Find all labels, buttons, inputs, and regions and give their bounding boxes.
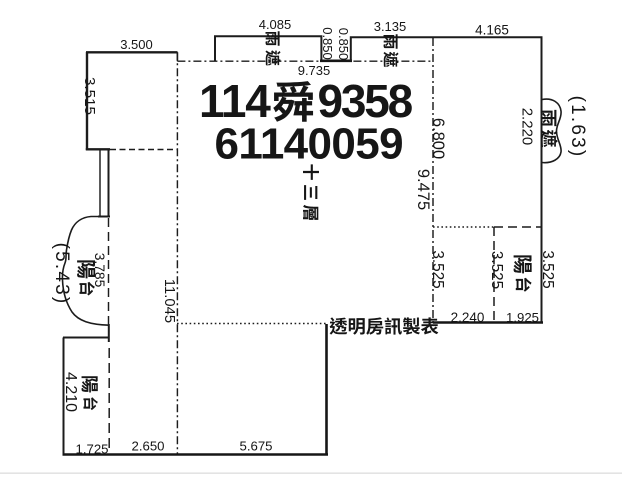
svg-text:3.515: 3.515 bbox=[81, 77, 98, 115]
svg-text:1.925: 1.925 bbox=[506, 310, 539, 325]
svg-text:0.850: 0.850 bbox=[336, 28, 351, 61]
svg-text:1.725: 1.725 bbox=[75, 441, 108, 456]
svg-text:11.045: 11.045 bbox=[161, 279, 177, 323]
svg-text:6.800: 6.800 bbox=[429, 118, 447, 159]
svg-text:9.475: 9.475 bbox=[414, 169, 432, 210]
svg-text:61140059: 61140059 bbox=[215, 120, 404, 169]
svg-text:3.525: 3.525 bbox=[488, 251, 505, 289]
svg-text:4.210: 4.210 bbox=[62, 372, 79, 412]
svg-text:3.525: 3.525 bbox=[429, 250, 446, 288]
svg-text:(1.63): (1.63) bbox=[567, 96, 588, 159]
svg-text:0.850: 0.850 bbox=[320, 27, 335, 60]
svg-text:4.165: 4.165 bbox=[475, 22, 509, 37]
svg-text:(5.43): (5.43) bbox=[51, 243, 72, 306]
svg-text:3.500: 3.500 bbox=[120, 37, 153, 52]
svg-text:3.525: 3.525 bbox=[539, 250, 556, 288]
svg-text:3.135: 3.135 bbox=[374, 19, 407, 34]
svg-text:5.675: 5.675 bbox=[239, 438, 272, 453]
svg-text:2.650: 2.650 bbox=[131, 438, 164, 453]
svg-text:4.085: 4.085 bbox=[259, 17, 292, 32]
svg-text:2.240: 2.240 bbox=[451, 310, 485, 325]
svg-text:2.220: 2.220 bbox=[519, 108, 536, 146]
